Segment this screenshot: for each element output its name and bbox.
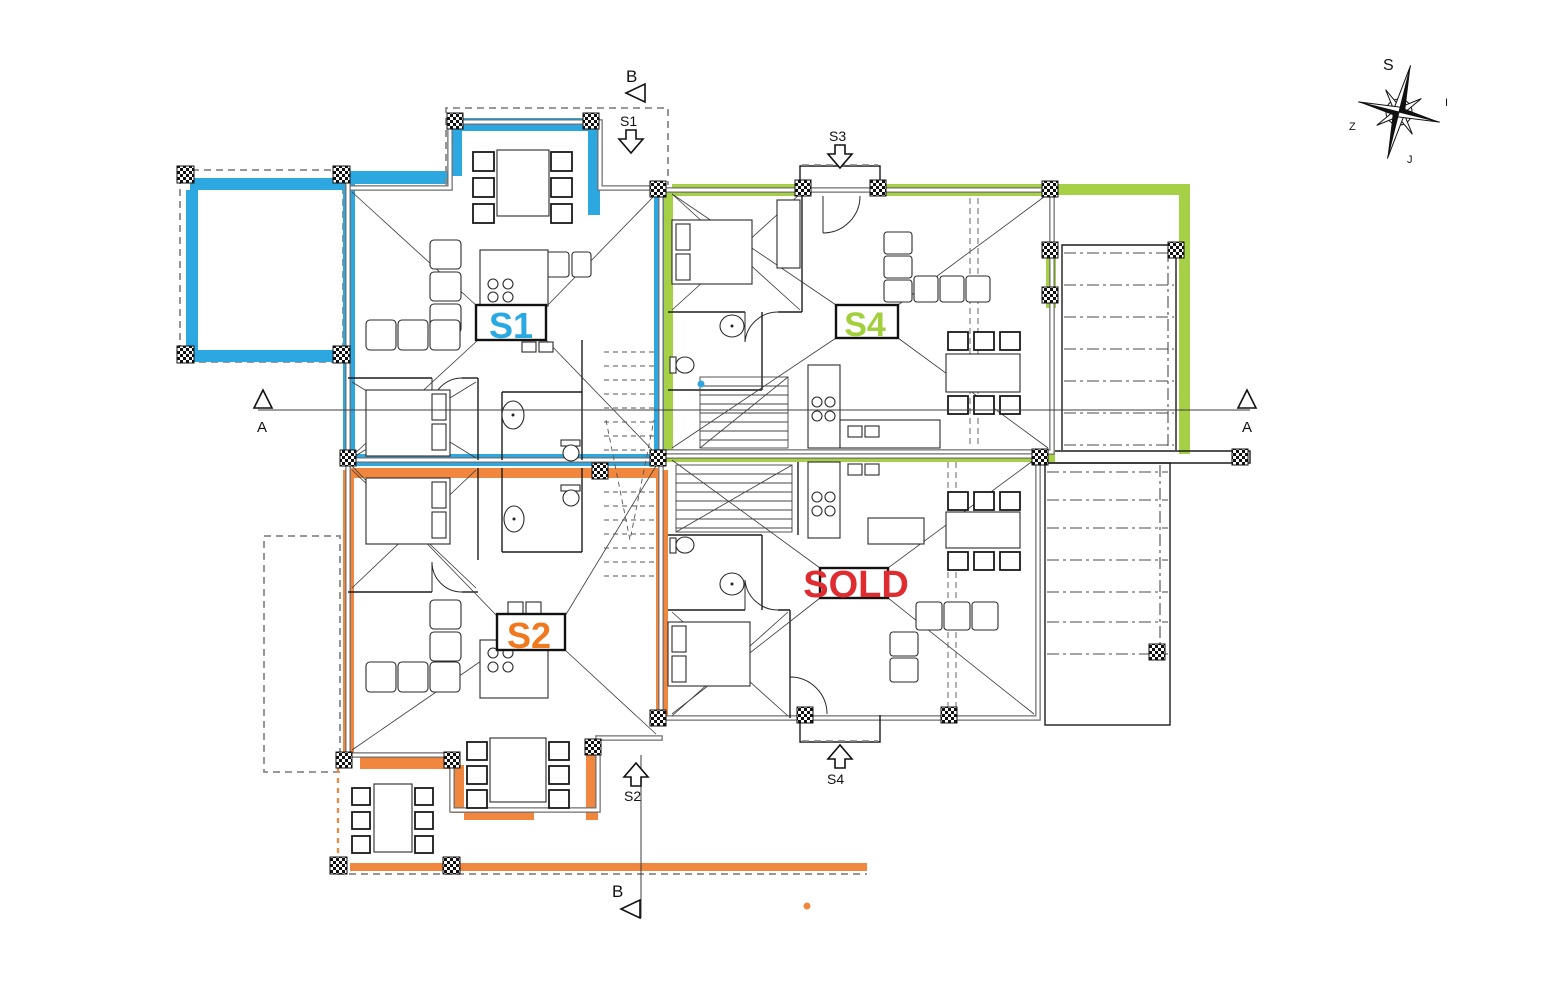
compass-west-label: Z [1349, 121, 1356, 133]
orange-dot [804, 903, 811, 910]
section-a-right-triangle [1238, 390, 1256, 408]
terrace-s2-bottom [337, 742, 867, 874]
floor-plan-canvas: A A B B S1 S3 S4 S2 S1 S2 S4 SOLD [0, 0, 1553, 1002]
entry-s1-arrow [619, 130, 643, 153]
stairs-sold [676, 465, 792, 532]
unit-s1-label: S1 [489, 305, 533, 346]
entry-s2-label: S2 [624, 788, 641, 804]
compass-east-label: I [1445, 97, 1448, 109]
blue-dot [698, 381, 705, 388]
unit-sold-label: SOLD [803, 564, 909, 606]
section-a-left-triangle [254, 390, 272, 408]
section-b-top-label: B [626, 67, 637, 86]
section-a-right-label: A [1242, 419, 1252, 436]
entry-s4-label: S4 [827, 771, 844, 787]
compass-south-label: J [1407, 154, 1413, 166]
compass-north-label: S [1383, 57, 1394, 74]
entry-s3-label: S3 [829, 128, 846, 144]
terrace-sold-right [1032, 451, 1250, 725]
section-b-bottom-triangle [621, 900, 640, 918]
furniture-s2 [352, 478, 580, 853]
compass-rose: S I Z J [1347, 55, 1452, 168]
entry-s1-label: S1 [620, 113, 637, 129]
section-b-bottom-label: B [612, 882, 623, 901]
entry-s2-arrow [624, 763, 648, 786]
stairs-s4 [700, 377, 788, 448]
yard-outline-s2 [264, 536, 340, 772]
section-a-left-label: A [257, 419, 267, 436]
section-b-top-triangle [626, 84, 645, 102]
balcony-s1-left [180, 170, 343, 362]
floor-plan-drawing: A A B B S1 S3 S4 S2 S1 S2 S4 SOLD [0, 0, 1553, 1002]
terrace-s4-right [1046, 184, 1190, 454]
unit-s2-label: S2 [507, 615, 551, 656]
entry-s4-arrow [828, 745, 852, 768]
unit-s4-label: S4 [844, 306, 886, 344]
